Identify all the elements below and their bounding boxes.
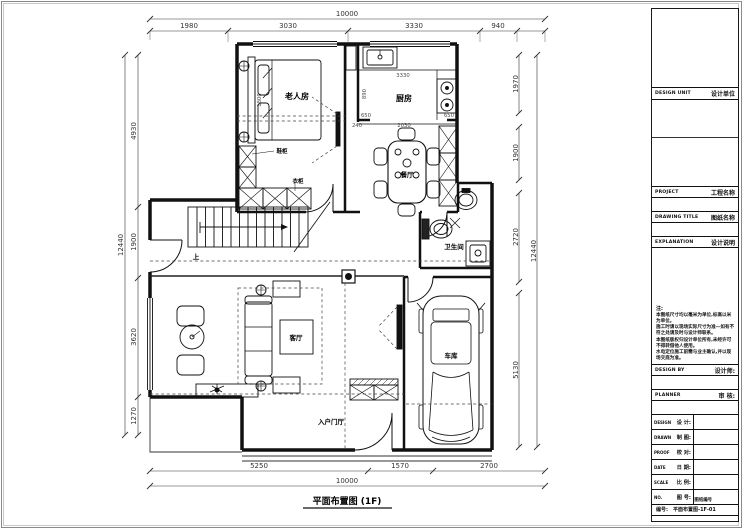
dim-right-1: 1970 — [512, 75, 520, 93]
label-bedroom: 老人房 — [284, 91, 309, 101]
explanation-label-en: EXPLANATION — [655, 240, 693, 245]
bed-headboard — [248, 57, 255, 143]
side-table — [273, 377, 300, 393]
dining-furniture — [374, 126, 458, 216]
label-stair-up: 上 — [193, 252, 200, 261]
dim-kitchen-depth: 890 — [362, 88, 368, 99]
note-line: 水电定位施工前需与业主确认,并以现场交底为准。 — [656, 350, 735, 362]
label-kitchen: 厨房 — [396, 93, 412, 103]
label-living: 客厅 — [289, 333, 304, 342]
living-tv — [397, 305, 402, 349]
dim-right-3: 2720 — [512, 228, 520, 246]
label-garage: 车库 — [445, 351, 459, 360]
bedroom-tv — [336, 112, 340, 146]
drawing-title-row: DRAWING TITLE 图纸名称 — [652, 211, 738, 223]
explanation-label-cn: 设计说明 — [711, 238, 735, 247]
row-en: PROOF — [654, 450, 670, 455]
dim-top-1: 1980 — [180, 22, 198, 30]
dining-chair — [427, 148, 440, 165]
dim-jamb: 240 — [352, 123, 363, 129]
tv-bench — [196, 384, 258, 397]
row-cn: 日 期: — [677, 464, 691, 471]
dim-right-2: 1900 — [512, 144, 520, 162]
row-en: SCALE — [654, 480, 668, 485]
explanation-row: EXPLANATION 设计说明 — [652, 236, 738, 248]
label-wardrobe: 衣柜 — [292, 177, 304, 185]
dim-counter-right: 650 — [444, 113, 455, 119]
drawing-title-label-en: DRAWING TITLE — [655, 215, 698, 220]
dim-pass-opening: 2030 — [397, 123, 411, 129]
plan-title: 平面布置图 (1F) — [303, 495, 392, 508]
faucet-icon — [378, 55, 382, 59]
dim-left-overall: 12440 — [117, 234, 125, 256]
doors — [150, 184, 447, 450]
drawing-no-value: 平面布置图-1F-01 — [673, 506, 716, 513]
label-entry: 入户门厅 — [317, 417, 345, 426]
signoff-row: SCALE比 例: — [652, 475, 738, 490]
signoff-table: DESIGN设 计: DRAWN制 图: PROOF校 对: DATE日 期: … — [652, 414, 738, 505]
pillow — [258, 65, 269, 95]
planner-row: PLANNER 审 核: — [652, 389, 738, 401]
dining-chair — [398, 128, 415, 140]
project-label-cn: 工程名称 — [711, 188, 735, 197]
signoff-row: PROOF校 对: — [652, 445, 738, 460]
toilet-tank — [422, 219, 429, 239]
row-en: DATE — [654, 465, 666, 470]
row-en: DESIGN — [654, 420, 671, 425]
signoff-row: DESIGN设 计: — [652, 415, 738, 430]
bathroom-fixtures — [422, 189, 490, 267]
dining-chair — [427, 181, 440, 198]
label-shoe-cabinet: 鞋柜 — [276, 147, 288, 155]
drawing-number-row: 编号: 平面布置图-1F-01 — [652, 504, 738, 516]
dim-right-4: 5130 — [512, 361, 520, 379]
dim-top-overall: 10000 — [336, 10, 358, 18]
title-block: DESIGN UNIT 设计单位 PROJECT 工程名称 DRAWING TI… — [651, 8, 739, 522]
design-by-row: DESIGN BY 设计师: — [652, 364, 738, 376]
dim-top-3: 3330 — [405, 22, 423, 30]
dim-bottom-3: 2700 — [480, 462, 498, 470]
dim-left-1: 4930 — [130, 122, 138, 140]
dim-bottom-2: 1570 — [391, 462, 409, 470]
entry-side-door — [150, 240, 182, 272]
design-by-label-en: DESIGN BY — [655, 368, 685, 373]
dim-top-2: 3030 — [279, 22, 297, 30]
dim-kitchen-width: 3330 — [396, 73, 410, 79]
row-cn: 比 例: — [677, 479, 691, 486]
drawing-no-label: 编号: — [656, 506, 668, 513]
signoff-row: DRAWN制 图: — [652, 430, 738, 445]
dim-left-2: 1900 — [130, 233, 138, 251]
dining-chair — [374, 181, 387, 198]
car — [417, 296, 485, 444]
drawing-no-caption: 图纸编号 — [694, 497, 712, 503]
bedroom-furniture — [239, 57, 340, 209]
divider-line — [652, 137, 738, 138]
label-bath: 卫生间 — [444, 242, 464, 251]
row-en: DRAWN — [654, 435, 671, 440]
staircase — [188, 202, 330, 252]
note-line: 本图纸尺寸均以毫米为单位,标高以米为单位。 — [656, 313, 735, 325]
drawing-title-text: 平面布置图 (1F) — [313, 495, 382, 507]
dining-chair — [398, 204, 415, 216]
drawing-title-label-cn: 图纸名称 — [711, 213, 735, 222]
design-unit-row: DESIGN UNIT 设计单位 — [652, 87, 738, 100]
dim-counter-left: 650 — [361, 113, 372, 119]
garage-door — [408, 277, 433, 302]
floor-plan-drawing: 10000 1980 3030 3330 940 5250 1570 2700 … — [0, 0, 743, 529]
dim-bottom-overall: 10000 — [336, 477, 358, 485]
dim-right-overall: 12440 — [530, 240, 538, 262]
signoff-row: NO.图 号: 图纸编号 — [652, 490, 738, 505]
dim-left-3: 3620 — [130, 328, 138, 346]
dim-left-4: 1270 — [130, 407, 138, 425]
stove — [437, 79, 457, 113]
entry-cabinet — [350, 379, 398, 400]
sofa — [245, 302, 272, 376]
row-en: NO. — [654, 495, 662, 500]
side-table — [273, 281, 300, 297]
entry-main-door — [355, 413, 392, 450]
notes-head: 注: — [656, 306, 735, 313]
row-cn: 图 号: — [677, 494, 691, 501]
dim-top-4: 940 — [491, 22, 504, 30]
row-cn: 校 对: — [677, 449, 691, 456]
dim-bed: 1800 — [257, 93, 263, 107]
note-line: 施工时请以现场实际尺寸为准—如有不符之处请及时与设计师联系。 — [656, 325, 735, 337]
design-unit-label-cn: 设计单位 — [711, 89, 735, 98]
notes-block: 注: 本图纸尺寸均以毫米为单位,标高以米为单位。 施工时请以现场实际尺寸为准—如… — [656, 306, 735, 362]
design-unit-label-en: DESIGN UNIT — [655, 91, 691, 96]
note-line: 本图纸版权归设计单位所有,未经许可不得转借他人使用。 — [656, 338, 735, 350]
dining-chair — [374, 148, 387, 165]
dim-bottom-1: 5250 — [250, 462, 268, 470]
row-cn: 制 图: — [677, 434, 691, 441]
kitchen-column — [346, 46, 356, 70]
planner-label-cn: 审 核: — [719, 391, 736, 400]
label-dining: 餐厅 — [400, 170, 415, 179]
armchair — [177, 355, 204, 375]
stair-direction-arrow — [281, 224, 288, 230]
signoff-row: DATE日 期: — [652, 460, 738, 475]
project-label-en: PROJECT — [655, 190, 679, 195]
planner-label-en: PLANNER — [655, 393, 681, 398]
project-row: PROJECT 工程名称 — [652, 186, 738, 198]
row-cn: 设 计: — [677, 419, 691, 426]
design-by-label-cn: 设计师: — [715, 366, 735, 375]
armchair — [177, 306, 204, 326]
drawing-sheet: 10000 1980 3030 3330 940 5250 1570 2700 … — [0, 0, 743, 529]
